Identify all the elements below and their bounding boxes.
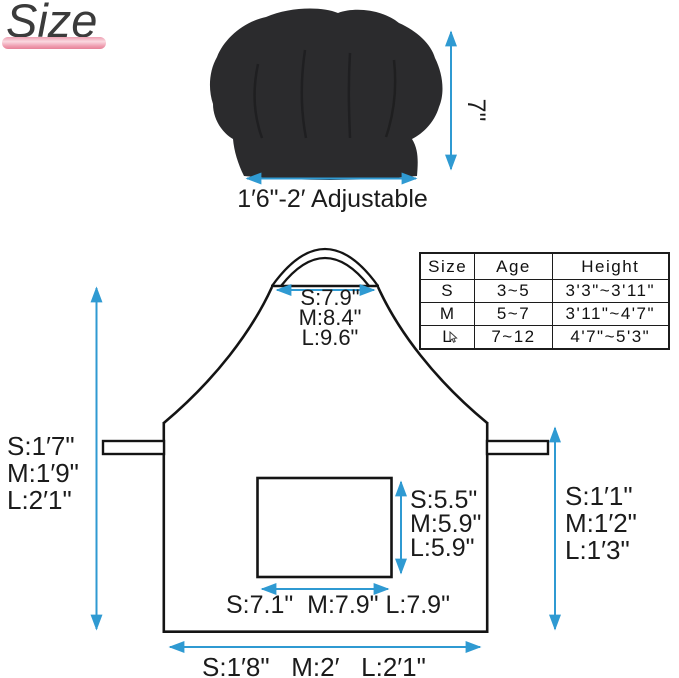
pocket-height-l: L:5.9"	[410, 536, 481, 560]
pocket-width-label: S:7.1" M:7.9" L:7.9"	[226, 591, 450, 620]
pocket-height-s: S:5.5"	[410, 488, 481, 512]
size-cell: L	[420, 326, 475, 350]
neck-width-labels: S:7.9" M:8.4" L:9.6"	[280, 288, 380, 348]
left-height-labels: S:1′7" M:1′9" L:2′1"	[7, 433, 79, 514]
apron-left-tie	[103, 441, 164, 454]
age-cell: 3~5	[475, 280, 552, 303]
height-cell: 3'11"~4'7"	[552, 303, 669, 326]
size-table-header-size: Size	[420, 253, 475, 280]
apron-neck-strap-outer	[272, 249, 378, 286]
right-height-m: M:1′2"	[565, 510, 637, 537]
neck-width-l: L:9.6"	[280, 328, 380, 348]
right-height-labels: S:1′1" M:1′2" L:1′3"	[565, 483, 637, 564]
left-height-s: S:1′7"	[7, 433, 79, 460]
height-cell: 4'7"~5'3"	[552, 326, 669, 350]
size-table-header-age: Age	[475, 253, 552, 280]
size-table: Size Age Height S 3~5 3'3"~3'11" M 5~7 3…	[419, 252, 670, 350]
pocket-height-m: M:5.9"	[410, 512, 481, 536]
table-row: S 3~5 3'3"~3'11"	[420, 280, 669, 303]
size-cell: M	[420, 303, 475, 326]
size-cell: S	[420, 280, 475, 303]
hat-height-label: 7"	[456, 89, 496, 131]
apron-pocket	[258, 478, 392, 577]
height-cell: 3'3"~3'11"	[552, 280, 669, 303]
pocket-height-labels: S:5.5" M:5.9" L:5.9"	[410, 488, 481, 560]
table-row: L 7~12 4'7"~5'3"	[420, 326, 669, 350]
age-cell: 5~7	[475, 303, 552, 326]
apron-right-tie	[487, 441, 548, 454]
table-row: M 5~7 3'11"~4'7"	[420, 303, 669, 326]
left-height-m: M:1′9"	[7, 460, 79, 487]
left-height-l: L:2′1"	[7, 487, 79, 514]
size-table-header-row: Size Age Height	[420, 253, 669, 280]
chef-hat-silhouette	[210, 8, 443, 180]
hat-width-label: 1′6"-2′ Adjustable	[190, 185, 475, 214]
right-height-l: L:1′3"	[565, 537, 637, 564]
age-cell: 7~12	[475, 326, 552, 350]
bottom-width-label: S:1′8" M:2′ L:2′1"	[202, 652, 426, 678]
size-chart-image: Size	[0, 0, 679, 678]
size-table-header-height: Height	[552, 253, 669, 280]
apron-bib-left-curve	[164, 287, 272, 423]
right-height-s: S:1′1"	[565, 483, 637, 510]
chef-hat-illustration	[210, 8, 443, 180]
